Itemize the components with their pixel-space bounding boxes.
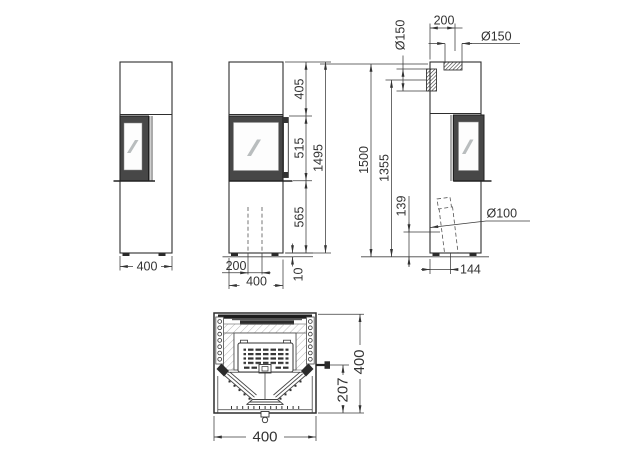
door-side-strip xyxy=(284,118,289,178)
dim-label-air-inlet-diameter: Ø100 xyxy=(487,207,518,221)
flue-collar-rear xyxy=(427,69,437,91)
firebox-lining xyxy=(296,333,306,370)
dim-label-handle-depth: 207 xyxy=(335,377,352,402)
grate-slots xyxy=(244,348,289,366)
dim-label-top-flue-diameter: Ø150 xyxy=(481,30,512,44)
foot xyxy=(231,253,238,256)
technical-drawing-page: 400 200 400 xyxy=(0,0,624,460)
flue-collar-top xyxy=(444,62,462,70)
foot xyxy=(272,253,279,256)
dim-label-front-plinth: 10 xyxy=(292,268,306,282)
dim-label-rear-flue-height: 1355 xyxy=(378,154,392,182)
door-strip-cap xyxy=(284,118,289,124)
dim-label-top-flue-offset: 200 xyxy=(434,14,455,28)
firebox-lining xyxy=(224,324,307,333)
foot xyxy=(123,253,130,256)
dim-label-left-width: 400 xyxy=(137,260,158,274)
dim-label-air-inlet-height: 139 xyxy=(395,196,409,217)
firebox-lining xyxy=(224,333,234,370)
stove-technical-drawing: 400 200 400 xyxy=(0,0,624,460)
rear-inner-rail xyxy=(232,319,302,320)
foot xyxy=(470,253,477,256)
dim-label-top-section: 405 xyxy=(293,79,307,100)
foot xyxy=(433,253,440,256)
grate-latch xyxy=(259,365,271,374)
left-side-view: 400 xyxy=(114,62,173,274)
dim-label-air-inlet-offset: 144 xyxy=(460,263,481,277)
door-latch-housing xyxy=(261,412,269,418)
dim-label-plan-width: 400 xyxy=(252,429,277,446)
door-handle-knob xyxy=(325,361,331,369)
door-strip-cap xyxy=(284,172,289,178)
dim-label-front-overall-height: 1495 xyxy=(312,144,326,172)
dim-label-door-section: 515 xyxy=(293,138,307,159)
foot xyxy=(159,253,166,256)
door-latch-knob xyxy=(262,417,267,422)
dim-label-rear-flue-diameter: Ø150 xyxy=(394,20,408,51)
dim-label-plan-depth: 400 xyxy=(351,349,368,374)
dim-label-side-overall-height: 1500 xyxy=(357,146,371,174)
dim-label-base-section: 565 xyxy=(293,207,307,228)
dim-label-front-width: 400 xyxy=(246,275,267,289)
rear-panel xyxy=(218,315,312,319)
